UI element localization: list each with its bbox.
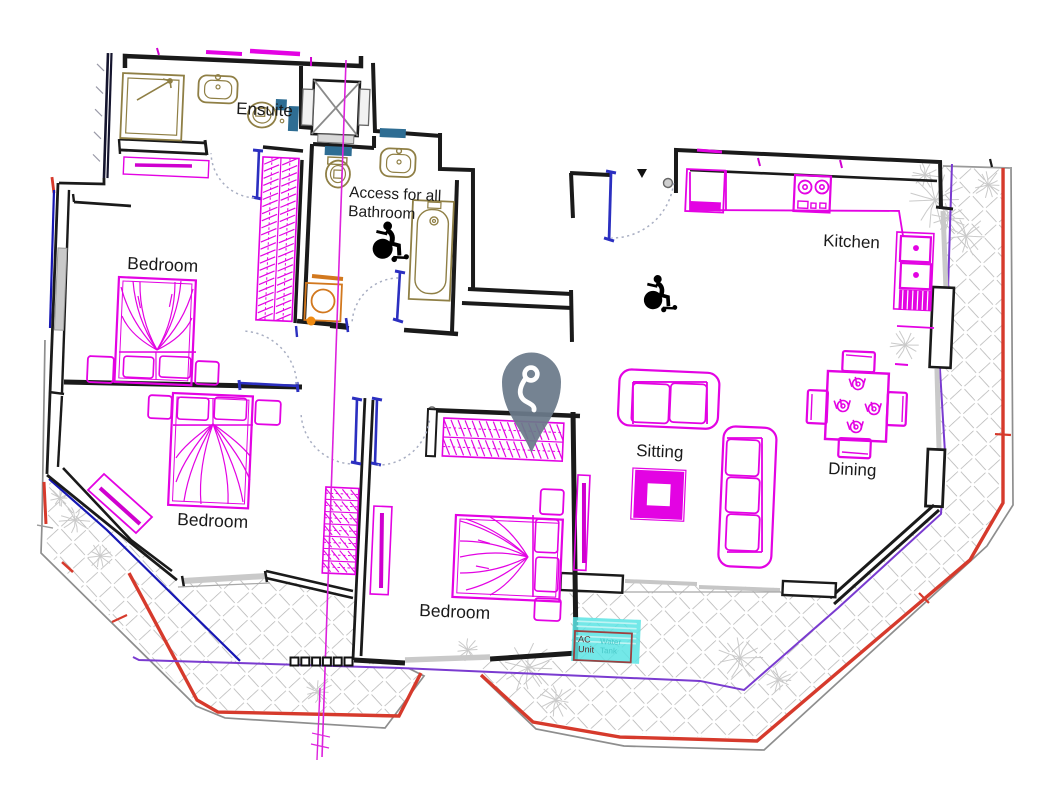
svg-text:Bedroom: Bedroom [177, 509, 249, 532]
svg-text:Unit: Unit [578, 644, 595, 655]
svg-text:Kitchen: Kitchen [823, 231, 880, 252]
svg-text:Bedroom: Bedroom [127, 253, 199, 276]
svg-text:Bathroom: Bathroom [348, 203, 416, 223]
svg-text:Bedroom: Bedroom [419, 600, 491, 623]
svg-text:AC: AC [578, 634, 591, 645]
svg-text:Dining: Dining [828, 459, 877, 480]
svg-text:Tank: Tank [600, 646, 618, 656]
svg-text:Ensuite: Ensuite [236, 99, 293, 120]
svg-text:Sitting: Sitting [636, 441, 684, 462]
